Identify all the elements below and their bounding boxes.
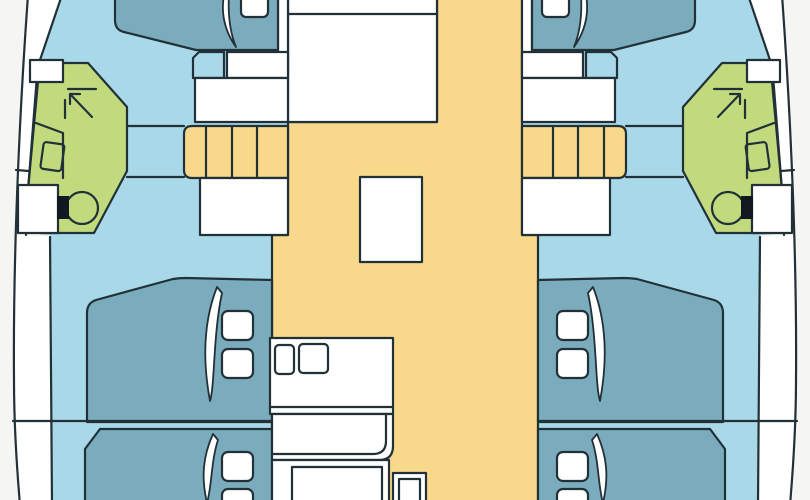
starboard-deck-joint xyxy=(781,170,794,171)
stairs-body xyxy=(522,126,626,178)
toilet-tank xyxy=(57,196,69,219)
port-companionway-stairs xyxy=(184,126,288,178)
starboard-vanity-block xyxy=(752,185,792,233)
cabin-storage xyxy=(522,78,615,122)
toilet-tank xyxy=(741,196,753,219)
port-vanity-block xyxy=(18,185,58,233)
dresser xyxy=(522,52,583,78)
step-box xyxy=(193,52,224,78)
step-box xyxy=(586,52,617,78)
aft-port-cabin-1 xyxy=(87,278,272,422)
forward-console-block xyxy=(288,0,437,122)
salon-table xyxy=(360,177,422,262)
dresser xyxy=(227,52,288,78)
toilet-icon xyxy=(66,192,98,224)
berth-pillow xyxy=(557,489,588,500)
catamaran-floor-plan xyxy=(0,0,810,500)
starboard-stair-storage xyxy=(522,178,610,235)
berth-pillow xyxy=(222,349,253,378)
port-stair-storage xyxy=(200,178,288,235)
aft-port-cabin-2 xyxy=(85,429,272,500)
berth-pillow xyxy=(241,0,268,17)
berth-pillow xyxy=(557,349,588,378)
aft-starboard-cabin-1 xyxy=(538,278,723,422)
aft-starboard-cabin-2 xyxy=(538,429,725,500)
sink-basin-large xyxy=(299,344,328,373)
berth-pillow xyxy=(542,0,569,17)
port-deck-joint xyxy=(16,170,29,171)
cabin-storage xyxy=(195,78,288,122)
toilet-icon xyxy=(712,192,744,224)
berth-pillow xyxy=(222,489,253,500)
berth-pillow xyxy=(222,452,253,481)
starboard-companionway-stairs xyxy=(522,126,626,178)
berth-pillow xyxy=(557,311,588,340)
floor-plan-canvas xyxy=(0,0,810,500)
stairs-body xyxy=(184,126,288,178)
berth-pillow xyxy=(557,452,588,481)
berth-pillow xyxy=(222,311,253,340)
sink-basin-small xyxy=(275,345,294,374)
starboard-deck-hatch xyxy=(747,60,780,82)
port-deck-hatch xyxy=(30,60,63,82)
